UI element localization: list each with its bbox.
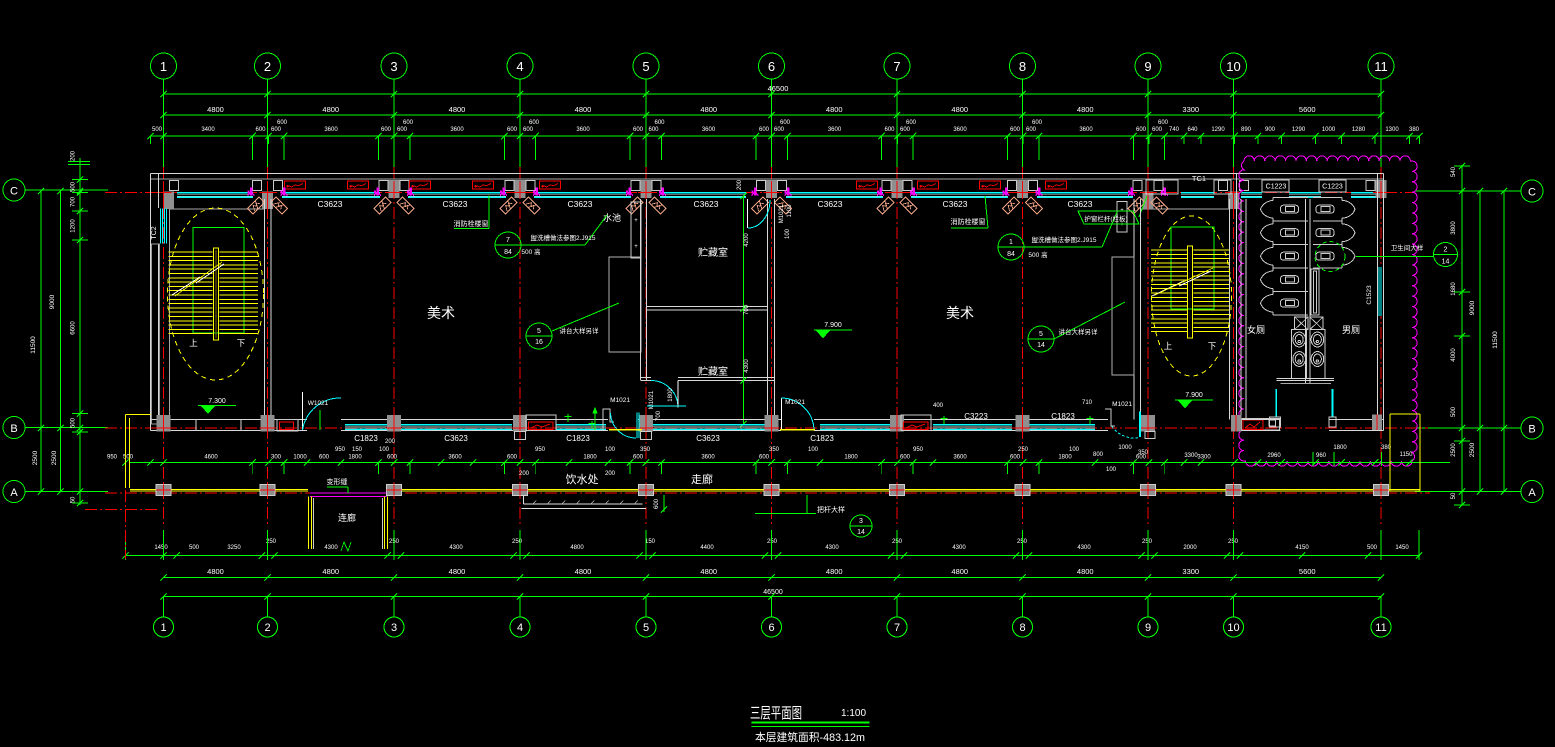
svg-text:600: 600	[759, 455, 770, 461]
svg-text:890: 890	[1241, 127, 1252, 133]
svg-text:500 高: 500 高	[521, 247, 541, 256]
svg-text:10: 10	[1227, 622, 1239, 634]
svg-text:8: 8	[1019, 59, 1026, 74]
svg-text:C1823: C1823	[810, 434, 834, 443]
svg-text:三层平面图: 三层平面图	[750, 705, 802, 722]
svg-text:3600: 3600	[576, 127, 590, 133]
svg-text:900: 900	[1265, 127, 1276, 133]
svg-text:600: 600	[884, 127, 895, 133]
svg-text:600: 600	[277, 120, 288, 126]
svg-text:卫生间大样: 卫生间大样	[1391, 243, 1424, 252]
svg-text:5: 5	[537, 328, 541, 335]
svg-text:4300: 4300	[952, 545, 966, 551]
svg-text:1800: 1800	[668, 388, 674, 402]
svg-text:600: 600	[1152, 127, 1163, 133]
svg-text:C1523: C1523	[1366, 285, 1373, 305]
svg-text:B: B	[10, 423, 17, 435]
svg-text:C3623: C3623	[442, 199, 467, 209]
svg-text:500: 500	[152, 127, 163, 133]
svg-text:11500: 11500	[1492, 331, 1499, 349]
svg-text:3600: 3600	[953, 127, 967, 133]
svg-text:1280: 1280	[1352, 127, 1366, 133]
svg-text:700: 700	[744, 304, 750, 315]
svg-text:5: 5	[643, 622, 649, 634]
svg-text:1800: 1800	[348, 455, 362, 461]
svg-text:600: 600	[900, 127, 911, 133]
svg-text:饮水处: 饮水处	[566, 473, 599, 486]
svg-text:600: 600	[1010, 455, 1021, 461]
svg-text:1200: 1200	[71, 219, 77, 233]
svg-text:84: 84	[1007, 251, 1015, 258]
svg-text:4300: 4300	[744, 359, 750, 373]
svg-text:3300: 3300	[1184, 453, 1198, 459]
svg-text:350: 350	[769, 447, 780, 453]
svg-text:200: 200	[519, 471, 530, 477]
svg-text:4300: 4300	[449, 545, 463, 551]
svg-text:3600: 3600	[324, 127, 338, 133]
svg-text:7: 7	[506, 237, 510, 244]
svg-text:1300: 1300	[1385, 127, 1399, 133]
svg-text:3600: 3600	[701, 455, 715, 461]
svg-text:4: 4	[516, 59, 523, 74]
svg-text:11: 11	[1375, 622, 1386, 634]
svg-text:消防栓楼窗: 消防栓楼窗	[951, 217, 986, 226]
svg-text:100: 100	[1106, 467, 1117, 473]
svg-text:7.300: 7.300	[208, 398, 226, 405]
svg-text:6: 6	[768, 59, 775, 74]
svg-text:连廊: 连廊	[338, 512, 356, 523]
svg-text:600: 600	[387, 455, 398, 461]
svg-text:250: 250	[1142, 539, 1153, 545]
svg-text:1: 1	[160, 622, 166, 634]
svg-text:4800: 4800	[207, 567, 224, 576]
svg-text:A: A	[1528, 487, 1536, 499]
svg-text:把杆大样: 把杆大样	[817, 505, 845, 514]
svg-text:100: 100	[379, 447, 390, 453]
svg-text:600: 600	[1026, 127, 1037, 133]
svg-text:1800: 1800	[1058, 455, 1072, 461]
svg-text:4800: 4800	[826, 105, 843, 114]
svg-text:走廊: 走廊	[691, 472, 713, 486]
svg-text:600: 600	[774, 127, 785, 133]
svg-text:5: 5	[1039, 331, 1043, 338]
svg-text:50: 50	[1451, 492, 1457, 499]
svg-text:600: 600	[507, 127, 518, 133]
svg-text:4800: 4800	[1077, 105, 1094, 114]
svg-text:950: 950	[535, 447, 546, 453]
svg-text:C3623: C3623	[317, 199, 342, 209]
svg-text:2500: 2500	[1469, 442, 1476, 457]
svg-text:3600: 3600	[828, 127, 842, 133]
svg-text:100: 100	[1069, 447, 1080, 453]
svg-text:2500: 2500	[51, 450, 58, 465]
svg-text:600: 600	[906, 120, 917, 126]
svg-text:960: 960	[1316, 453, 1327, 459]
svg-text:1450: 1450	[1395, 545, 1409, 551]
svg-text:16: 16	[535, 339, 543, 346]
svg-text:变形缝: 变形缝	[327, 477, 348, 486]
svg-text:下: 下	[1208, 341, 1217, 351]
svg-text:盥洗槽做法参图2.J915: 盥洗槽做法参图2.J915	[530, 233, 595, 242]
svg-text:M1021: M1021	[779, 204, 785, 223]
svg-text:女厕: 女厕	[1247, 324, 1265, 335]
svg-text:4150: 4150	[1295, 545, 1309, 551]
svg-text:2: 2	[1444, 247, 1448, 254]
svg-text:4800: 4800	[322, 105, 339, 114]
svg-text:1450: 1450	[154, 545, 168, 551]
svg-text:4300: 4300	[324, 545, 338, 551]
svg-text:C3623: C3623	[942, 199, 967, 209]
svg-text:600: 600	[1136, 455, 1147, 461]
svg-text:护窗栏杆(栏板): 护窗栏杆(栏板)	[1084, 214, 1127, 223]
svg-text:4300: 4300	[1077, 545, 1091, 551]
svg-text:1680: 1680	[1451, 282, 1457, 296]
svg-text:150: 150	[645, 539, 656, 545]
svg-text:+: +	[634, 218, 638, 224]
svg-text:4800: 4800	[826, 567, 843, 576]
svg-text:84: 84	[504, 249, 512, 256]
svg-text:600: 600	[319, 455, 330, 461]
svg-text:950: 950	[107, 455, 118, 461]
svg-text:M1021: M1021	[1112, 401, 1132, 408]
svg-text:4800: 4800	[951, 105, 968, 114]
svg-text:11: 11	[1374, 59, 1388, 74]
svg-text:上: 上	[1164, 341, 1173, 351]
svg-text:4600: 4600	[204, 455, 218, 461]
svg-text:150: 150	[352, 447, 363, 453]
svg-text:8: 8	[1019, 622, 1025, 634]
svg-text:600: 600	[1032, 120, 1043, 126]
svg-text:9000: 9000	[1469, 300, 1476, 315]
svg-text:1: 1	[160, 59, 167, 74]
svg-text:400: 400	[933, 403, 944, 409]
svg-text:5600: 5600	[1299, 105, 1316, 114]
svg-text:B: B	[1528, 424, 1535, 436]
svg-text:C3223: C3223	[964, 412, 988, 421]
svg-text:4800: 4800	[700, 105, 717, 114]
svg-text:消防栓楼窗: 消防栓楼窗	[454, 219, 489, 228]
svg-text:600: 600	[381, 127, 392, 133]
svg-text:3250: 3250	[227, 545, 241, 551]
svg-text:4000: 4000	[1451, 348, 1457, 362]
svg-text:M1021: M1021	[785, 399, 805, 406]
svg-text:3600: 3600	[1079, 127, 1093, 133]
svg-text:1000: 1000	[1322, 127, 1336, 133]
svg-text:600: 600	[397, 127, 408, 133]
svg-text:贮藏室: 贮藏室	[698, 365, 728, 378]
svg-text:200: 200	[385, 439, 396, 445]
svg-text:300: 300	[271, 455, 282, 461]
svg-text:下: 下	[237, 338, 246, 348]
svg-text:1150: 1150	[1400, 452, 1414, 458]
svg-text:740: 740	[1169, 127, 1180, 133]
svg-text:M1021: M1021	[610, 397, 630, 404]
svg-text:600: 600	[271, 127, 282, 133]
svg-text:讲台大样另详: 讲台大样另详	[1059, 327, 1099, 336]
svg-text:600: 600	[648, 127, 659, 133]
svg-text:500: 500	[71, 417, 77, 428]
svg-text:11500: 11500	[30, 336, 37, 354]
svg-text:3800: 3800	[1451, 221, 1457, 235]
svg-text:2: 2	[264, 622, 270, 634]
svg-text:500: 500	[189, 545, 200, 551]
svg-text:700: 700	[71, 196, 77, 207]
svg-text:C1223: C1223	[1266, 184, 1287, 191]
svg-text:540: 540	[1451, 166, 1457, 177]
svg-text:600: 600	[780, 120, 791, 126]
svg-text:600: 600	[507, 455, 518, 461]
svg-text:1290: 1290	[1292, 127, 1306, 133]
svg-text:4800: 4800	[951, 567, 968, 576]
svg-text:上: 上	[189, 338, 198, 348]
svg-text:C1223: C1223	[1322, 184, 1343, 191]
svg-text:TC2: TC2	[151, 226, 158, 239]
svg-text:C3623: C3623	[1067, 199, 1092, 209]
svg-text:600: 600	[900, 455, 911, 461]
svg-text:9: 9	[1144, 59, 1151, 74]
svg-text:男厕: 男厕	[1342, 325, 1360, 335]
svg-text:2960: 2960	[1267, 453, 1281, 459]
svg-text:600: 600	[654, 498, 660, 509]
svg-text:本层建筑面积-483.12m: 本层建筑面积-483.12m	[755, 730, 865, 742]
svg-text:200: 200	[737, 179, 743, 190]
svg-text:100: 100	[808, 447, 819, 453]
svg-text:3600: 3600	[953, 455, 967, 461]
svg-text:1800: 1800	[583, 455, 597, 461]
svg-text:5600: 5600	[1299, 567, 1316, 576]
svg-text:3300: 3300	[1182, 567, 1199, 576]
svg-text:710: 710	[1082, 400, 1093, 406]
svg-text:4800: 4800	[449, 567, 466, 576]
svg-text:500 高: 500 高	[1028, 250, 1048, 259]
svg-text:3: 3	[391, 622, 397, 634]
svg-text:C1823: C1823	[566, 434, 590, 443]
svg-text:7.900: 7.900	[824, 322, 842, 329]
svg-text:4800: 4800	[322, 567, 339, 576]
svg-text:C3623: C3623	[567, 199, 592, 209]
svg-text:600: 600	[654, 120, 665, 126]
svg-text:10: 10	[1226, 59, 1240, 74]
svg-text:6600: 6600	[71, 321, 77, 335]
svg-text:250: 250	[767, 539, 778, 545]
svg-text:200: 200	[71, 150, 77, 161]
svg-text:C3623: C3623	[696, 434, 720, 443]
svg-text:C1823: C1823	[1051, 412, 1075, 421]
svg-text:4800: 4800	[449, 105, 466, 114]
svg-text:4800: 4800	[700, 567, 717, 576]
svg-text:600: 600	[255, 127, 266, 133]
svg-text:14: 14	[1037, 342, 1045, 349]
svg-text:C1823: C1823	[354, 434, 378, 443]
svg-text:讲台大样另详: 讲台大样另详	[560, 326, 600, 335]
svg-text:6: 6	[768, 622, 774, 634]
svg-text:600: 600	[1136, 127, 1147, 133]
svg-text:1800: 1800	[1333, 445, 1347, 451]
svg-text:3300: 3300	[1197, 455, 1211, 461]
svg-text:46500: 46500	[768, 84, 789, 93]
svg-text:50: 50	[71, 496, 77, 503]
svg-text:4200: 4200	[744, 233, 750, 247]
svg-text:500: 500	[1367, 545, 1378, 551]
svg-text:950: 950	[913, 447, 924, 453]
svg-text:3: 3	[390, 59, 397, 74]
svg-text:600: 600	[633, 455, 644, 461]
svg-text:3600: 3600	[448, 455, 462, 461]
svg-text:C3623: C3623	[817, 199, 842, 209]
svg-text:600: 600	[759, 127, 770, 133]
svg-text:C: C	[1528, 187, 1536, 199]
svg-text:+: +	[634, 244, 638, 250]
svg-text:600: 600	[1158, 120, 1169, 126]
svg-text:1000: 1000	[1118, 445, 1132, 451]
svg-text:1290: 1290	[1211, 127, 1225, 133]
svg-text:3600: 3600	[702, 127, 716, 133]
svg-text:1800: 1800	[844, 455, 858, 461]
svg-text:500: 500	[71, 181, 77, 192]
svg-text:7: 7	[894, 622, 900, 634]
svg-text:1100: 1100	[787, 204, 793, 218]
svg-text:A: A	[10, 487, 18, 499]
svg-text:14: 14	[1442, 259, 1450, 266]
svg-text:3300: 3300	[1182, 105, 1199, 114]
svg-text:3: 3	[859, 518, 863, 525]
svg-text:9: 9	[1145, 622, 1151, 634]
svg-text:500: 500	[1451, 406, 1457, 417]
svg-text:W1021: W1021	[308, 400, 329, 407]
svg-text:TC1: TC1	[1192, 174, 1206, 183]
svg-text:2000: 2000	[1183, 545, 1197, 551]
svg-text:贮藏室: 贮藏室	[698, 246, 728, 259]
svg-text:美术: 美术	[946, 305, 974, 321]
svg-text:350: 350	[640, 447, 651, 453]
svg-text:4: 4	[517, 622, 523, 634]
svg-text:600: 600	[403, 120, 414, 126]
svg-text:100: 100	[605, 447, 616, 453]
svg-text:380: 380	[1409, 127, 1420, 133]
svg-text:2500: 2500	[32, 450, 39, 465]
svg-text:950: 950	[335, 447, 346, 453]
svg-text:美术: 美术	[427, 305, 455, 321]
svg-text:1: 1	[1009, 239, 1013, 246]
svg-text:500: 500	[123, 455, 134, 461]
svg-text:C3623: C3623	[444, 434, 468, 443]
svg-text:C: C	[10, 186, 18, 198]
svg-text:3400: 3400	[201, 127, 215, 133]
svg-text:800: 800	[1093, 452, 1104, 458]
svg-text:200: 200	[605, 471, 616, 477]
svg-text:600: 600	[523, 127, 534, 133]
svg-text:14: 14	[857, 529, 865, 536]
svg-text:1:100: 1:100	[841, 708, 866, 719]
svg-text:7.900: 7.900	[1185, 392, 1203, 399]
svg-text:3600: 3600	[450, 127, 464, 133]
svg-text:盥洗槽做法参图2.J915: 盥洗槽做法参图2.J915	[1031, 235, 1096, 244]
svg-text:C3623: C3623	[693, 199, 718, 209]
svg-text:1000: 1000	[293, 455, 307, 461]
svg-text:4800: 4800	[1077, 567, 1094, 576]
svg-text:5: 5	[642, 59, 649, 74]
svg-text:600: 600	[633, 127, 644, 133]
svg-text:2: 2	[264, 59, 271, 74]
svg-text:4300: 4300	[825, 545, 839, 551]
svg-text:4800: 4800	[575, 105, 592, 114]
svg-text:7: 7	[893, 59, 900, 74]
svg-text:9000: 9000	[49, 294, 56, 309]
svg-text:250: 250	[512, 539, 523, 545]
svg-text:600: 600	[1010, 127, 1021, 133]
svg-text:600: 600	[529, 120, 540, 126]
svg-text:4800: 4800	[570, 545, 584, 551]
svg-text:250: 250	[1018, 447, 1029, 453]
svg-text:4800: 4800	[575, 567, 592, 576]
svg-text:2500: 2500	[1451, 443, 1457, 457]
svg-text:640: 640	[1187, 127, 1198, 133]
svg-text:4400: 4400	[700, 545, 714, 551]
svg-text:100: 100	[785, 228, 791, 239]
svg-text:4800: 4800	[207, 105, 224, 114]
